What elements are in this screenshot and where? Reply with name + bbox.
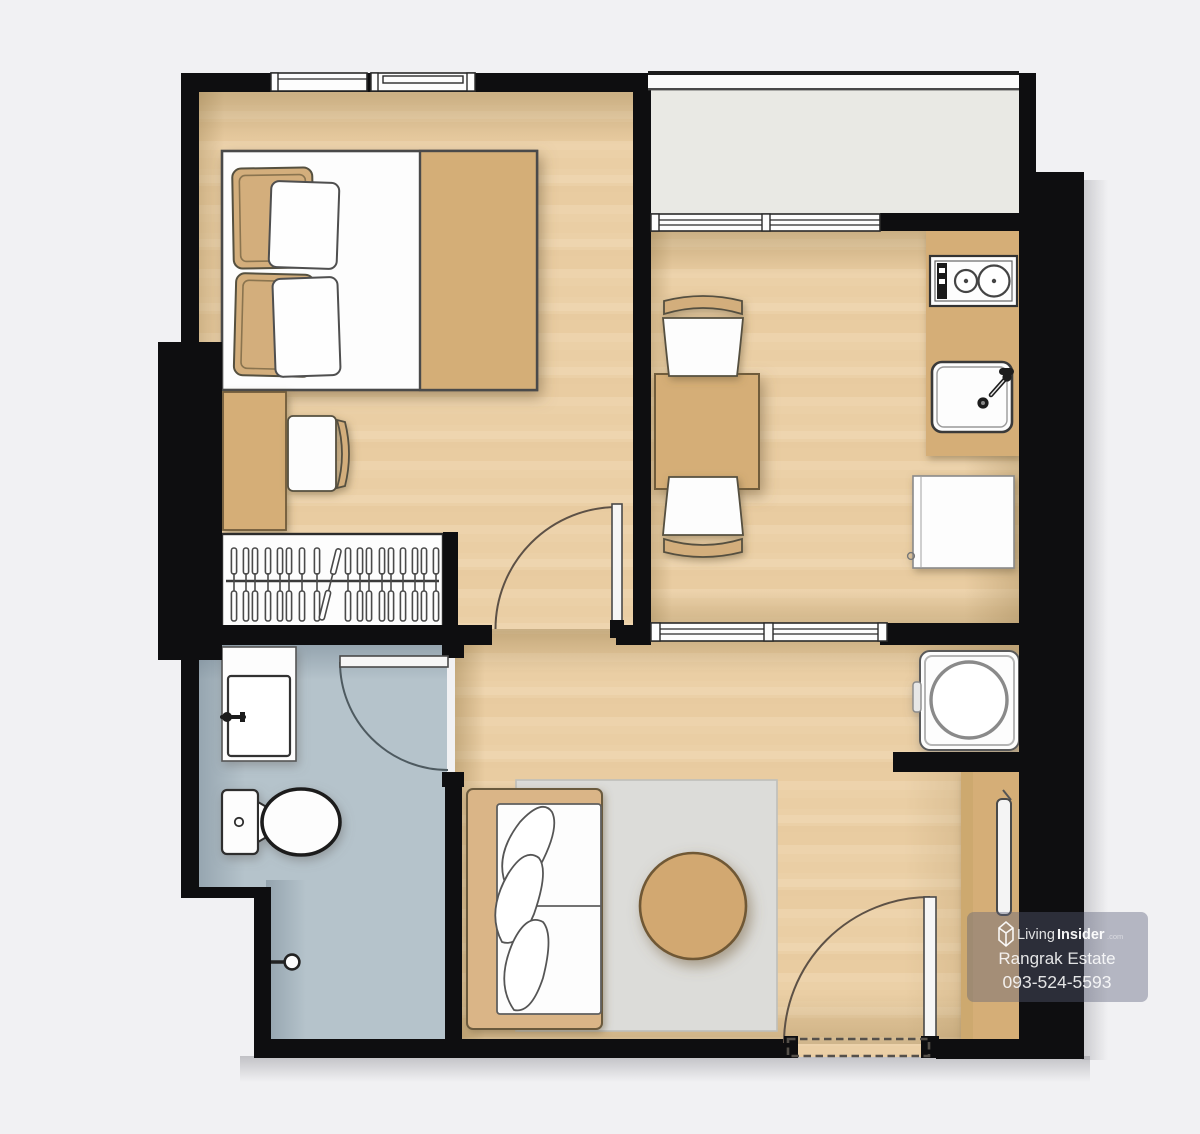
svg-text:.com: .com <box>1107 932 1123 941</box>
svg-text:Rangrak Estate: Rangrak Estate <box>998 949 1115 968</box>
svg-text:Insider: Insider <box>1057 927 1105 943</box>
svg-text:093-524-5593: 093-524-5593 <box>1003 972 1112 992</box>
svg-text:Living: Living <box>1017 927 1055 943</box>
